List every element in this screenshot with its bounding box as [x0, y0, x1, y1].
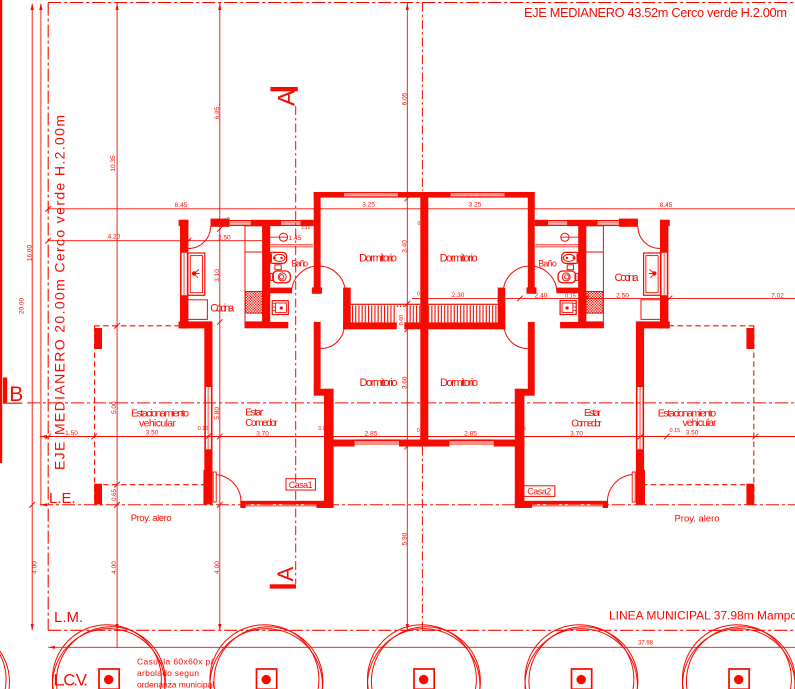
svg-text:0.15: 0.15: [417, 292, 427, 298]
svg-text:2.85: 2.85: [464, 430, 477, 437]
svg-text:5.90: 5.90: [401, 532, 408, 545]
svg-text:6.95: 6.95: [214, 106, 221, 119]
svg-text:3.70: 3.70: [256, 430, 269, 437]
svg-text:Casa2: Casa2: [527, 487, 551, 497]
svg-text:3.25: 3.25: [469, 201, 482, 208]
svg-text:5.80: 5.80: [214, 407, 221, 420]
svg-text:Dormitorio: Dormitorio: [360, 377, 398, 389]
svg-text:4.00: 4.00: [214, 561, 221, 574]
svg-text:L.E.: L.E.: [49, 490, 76, 507]
svg-text:3.50: 3.50: [146, 429, 159, 436]
svg-text:4.00: 4.00: [32, 561, 39, 574]
svg-text:Dormitorio: Dormitorio: [359, 253, 397, 265]
svg-text:8.45: 8.45: [660, 202, 673, 209]
svg-text:3.12: 3.12: [536, 221, 545, 226]
svg-text:ordenanza municipal: ordenanza municipal: [137, 680, 214, 689]
svg-text:A: A: [274, 90, 301, 106]
svg-text:A: A: [273, 566, 298, 581]
svg-text:10.35: 10.35: [110, 155, 117, 172]
svg-text:0.15: 0.15: [670, 428, 681, 434]
svg-text:8.45: 8.45: [175, 202, 188, 209]
svg-text:0.15: 0.15: [515, 426, 526, 432]
svg-text:5.00: 5.00: [111, 401, 118, 414]
svg-text:2.40: 2.40: [535, 293, 548, 300]
svg-text:0.05: 0.05: [318, 426, 329, 432]
svg-text:0.15: 0.15: [418, 221, 428, 227]
svg-text:B: B: [9, 383, 23, 406]
svg-text:3.70: 3.70: [570, 430, 583, 437]
svg-text:2.85: 2.85: [365, 430, 378, 437]
svg-text:20.00: 20.00: [19, 297, 26, 314]
svg-text:2.30: 2.30: [452, 292, 465, 299]
svg-text:0.15: 0.15: [226, 217, 232, 227]
svg-text:3.12: 3.12: [301, 225, 310, 230]
svg-text:2.50: 2.50: [616, 293, 629, 300]
svg-text:EJE MEDIANERO 43.52m Cerco: EJE MEDIANERO 43.52m Cerco verde H.2.00m: [524, 5, 787, 20]
svg-text:Casuela 60x60x p/: Casuela 60x60x p/: [137, 657, 214, 667]
svg-text:3.50: 3.50: [686, 430, 699, 437]
svg-text:Proy. alero: Proy. alero: [675, 514, 720, 525]
svg-text:Baño: Baño: [292, 259, 309, 269]
svg-text:3.60: 3.60: [401, 376, 408, 389]
svg-text:3.40: 3.40: [401, 240, 408, 253]
svg-text:0.60: 0.60: [399, 315, 405, 326]
svg-text:vehicular: vehicular: [139, 418, 177, 430]
svg-text:Dormitorio: Dormitorio: [440, 253, 478, 265]
svg-text:Comedor: Comedor: [571, 418, 602, 429]
svg-text:3.25: 3.25: [362, 201, 375, 208]
svg-text:EJE MEDIANERO 20.00m Cerco: EJE MEDIANERO 20.00m Cerco verde H.2.00m: [52, 115, 68, 470]
svg-text:arbolado segun: arbolado segun: [137, 668, 199, 678]
svg-text:2.50: 2.50: [218, 234, 231, 241]
svg-text:L.M.: L.M.: [54, 609, 83, 626]
svg-text:Casa1: Casa1: [289, 480, 313, 490]
svg-text:6.05: 6.05: [401, 92, 408, 105]
svg-text:vehicular: vehicular: [683, 417, 718, 429]
svg-text:Baño: Baño: [538, 259, 557, 269]
svg-text:Estar: Estar: [245, 407, 264, 418]
svg-text:L.C.V.: L.C.V.: [54, 672, 89, 689]
svg-text:Dormitorio: Dormitorio: [440, 377, 478, 389]
svg-text:0.05: 0.05: [417, 428, 428, 434]
svg-text:Comedor: Comedor: [245, 418, 278, 429]
svg-text:0.15: 0.15: [565, 294, 576, 300]
svg-text:1.45: 1.45: [289, 235, 302, 242]
svg-text:1.50: 1.50: [65, 430, 78, 437]
svg-text:LINEA MUNICIPAL 37.98m Mamp: LINEA MUNICIPAL 37.98m Mamposteria: [609, 609, 795, 623]
svg-text:7.02: 7.02: [771, 292, 784, 299]
svg-text:Cocina: Cocina: [615, 272, 640, 284]
svg-text:Proy. alero: Proy. alero: [131, 513, 172, 524]
svg-text:4.20: 4.20: [108, 234, 121, 241]
svg-text:0.65: 0.65: [112, 489, 118, 501]
svg-text:3.10: 3.10: [214, 269, 221, 282]
svg-text:37.98: 37.98: [638, 640, 654, 646]
svg-text:4.00: 4.00: [111, 561, 118, 574]
svg-text:Cocina: Cocina: [210, 303, 235, 315]
svg-text:0.15: 0.15: [198, 426, 209, 432]
svg-text:Estar: Estar: [584, 408, 602, 419]
svg-text:16.00: 16.00: [27, 244, 34, 261]
